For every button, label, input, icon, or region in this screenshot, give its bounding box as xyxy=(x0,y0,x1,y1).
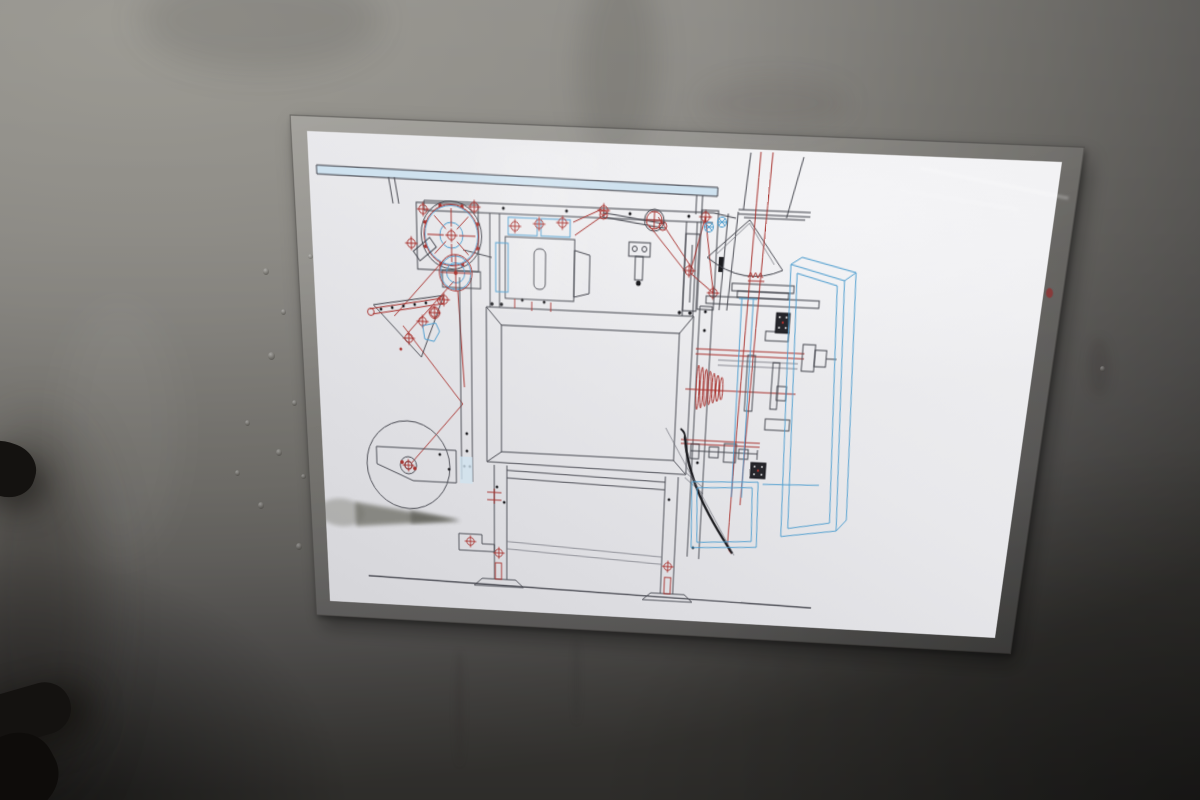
drawing-sheet xyxy=(307,131,1062,638)
bearing-block xyxy=(750,463,766,479)
photo-scene xyxy=(0,0,1200,800)
droplet xyxy=(292,400,297,406)
ground-line-group xyxy=(369,576,812,608)
droplet xyxy=(281,309,286,315)
wall-stain xyxy=(700,78,850,128)
drip-streak xyxy=(455,650,464,765)
laminated-sheet xyxy=(307,131,1062,638)
droplet xyxy=(1100,366,1105,372)
back-unit-group xyxy=(675,306,840,566)
droplet xyxy=(263,268,269,275)
droplet xyxy=(245,420,250,426)
drip-streak xyxy=(573,638,580,723)
droplet xyxy=(235,470,240,476)
sleeve-red-mark xyxy=(1046,288,1053,298)
droplet xyxy=(258,502,264,509)
droplet xyxy=(276,449,282,456)
wall-scratch xyxy=(1088,338,1110,396)
sleeve-sheen xyxy=(317,138,732,319)
droplet xyxy=(301,474,306,479)
under-frame-group xyxy=(473,464,698,603)
droplet xyxy=(296,543,302,550)
bearing-block xyxy=(775,313,790,333)
droplet xyxy=(268,352,275,360)
sheet-smudge xyxy=(318,497,461,532)
